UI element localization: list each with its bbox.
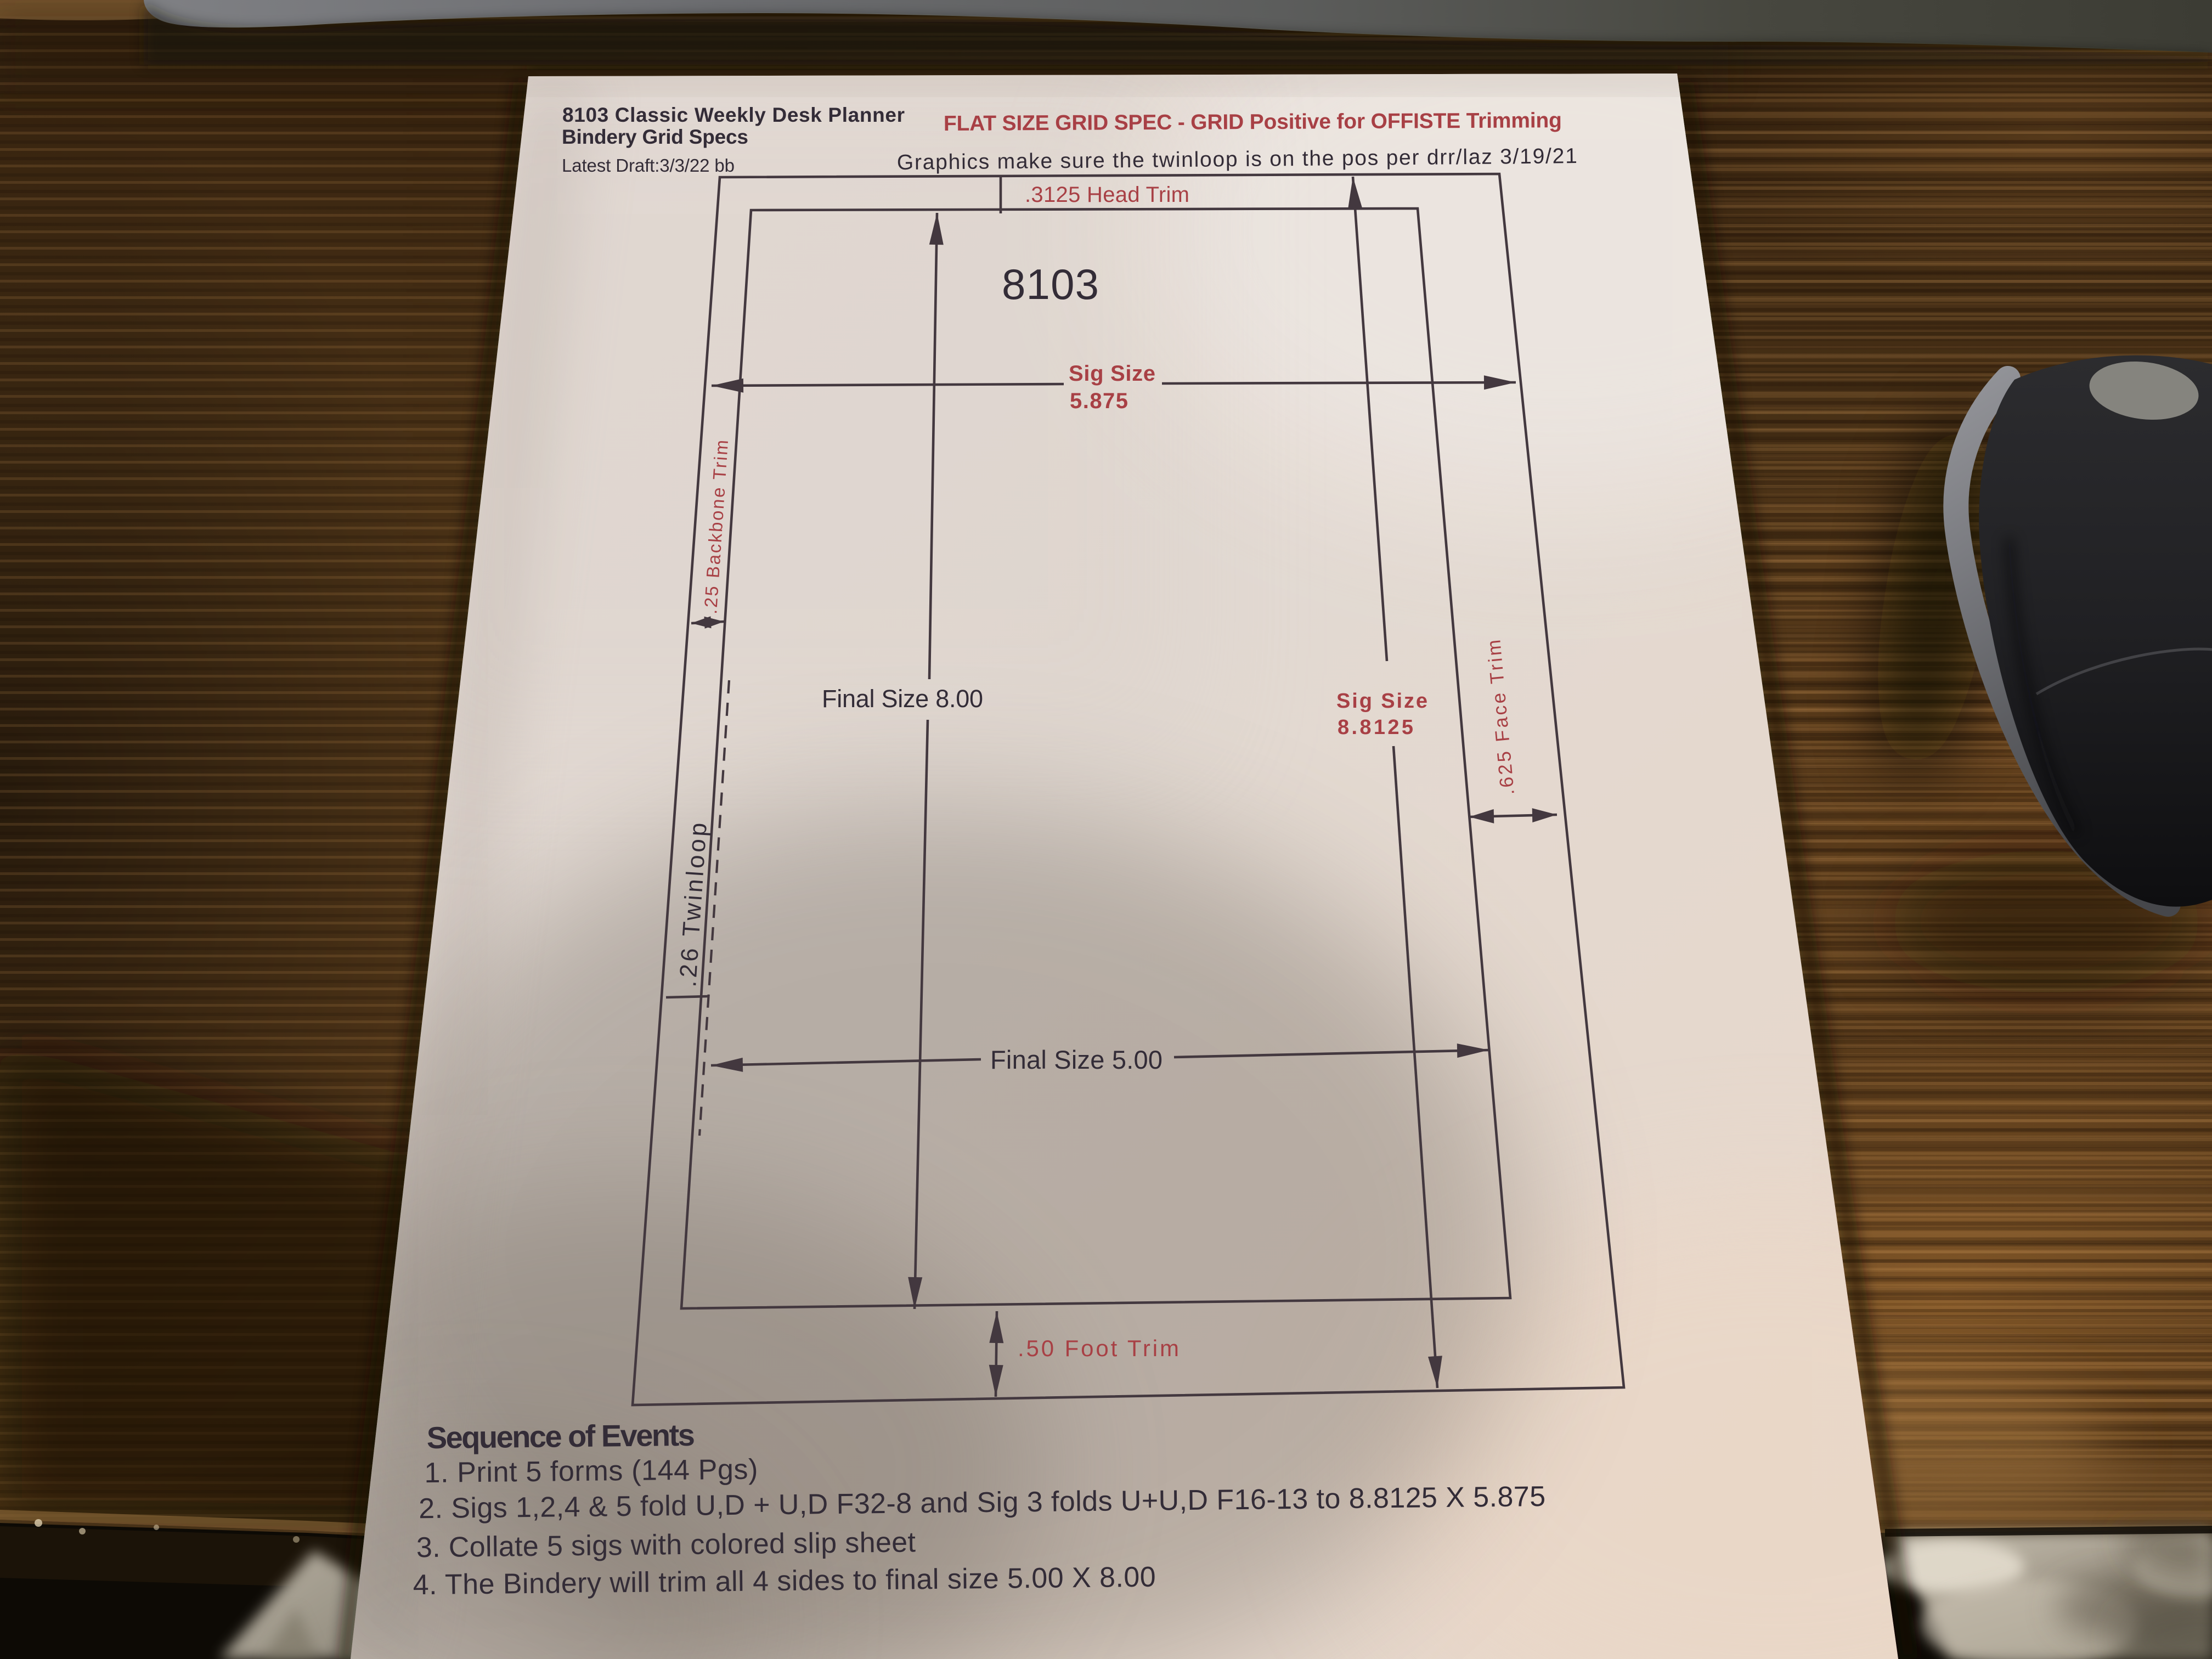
svg-text:.3125 Head Trim: .3125 Head Trim — [1025, 183, 1189, 207]
svg-text:.50 Foot Trim: .50 Foot Trim — [1018, 1335, 1179, 1361]
svg-text:Final Size 8.00: Final Size 8.00 — [822, 685, 983, 713]
svg-text:Sig Size: Sig Size — [1069, 362, 1155, 386]
svg-text:Sequence of Events: Sequence of Events — [426, 1418, 695, 1455]
svg-text:Sig Size: Sig Size — [1336, 690, 1427, 713]
svg-text:Final Size 5.00: Final Size 5.00 — [990, 1045, 1163, 1074]
svg-text:5.875: 5.875 — [1070, 389, 1128, 413]
svg-text:8103 Classic Weekly Desk Plann: 8103 Classic Weekly Desk Planner — [562, 104, 905, 126]
svg-text:3. Collate 5 sigs with colored: 3. Collate 5 sigs with colored slip shee… — [416, 1526, 916, 1564]
svg-text:FLAT SIZE GRID SPEC - GRID Pos: FLAT SIZE GRID SPEC - GRID Positive for … — [944, 109, 1562, 136]
svg-text:8.8125: 8.8125 — [1338, 716, 1413, 739]
svg-text:Latest Draft:3/3/22 bb: Latest Draft:3/3/22 bb — [562, 155, 735, 176]
svg-text:Bindery Grid Specs: Bindery Grid Specs — [562, 126, 748, 148]
svg-text:1. Print 5 forms (144 Pgs): 1. Print 5 forms (144 Pgs) — [424, 1453, 758, 1489]
svg-text:8103: 8103 — [1002, 260, 1099, 308]
